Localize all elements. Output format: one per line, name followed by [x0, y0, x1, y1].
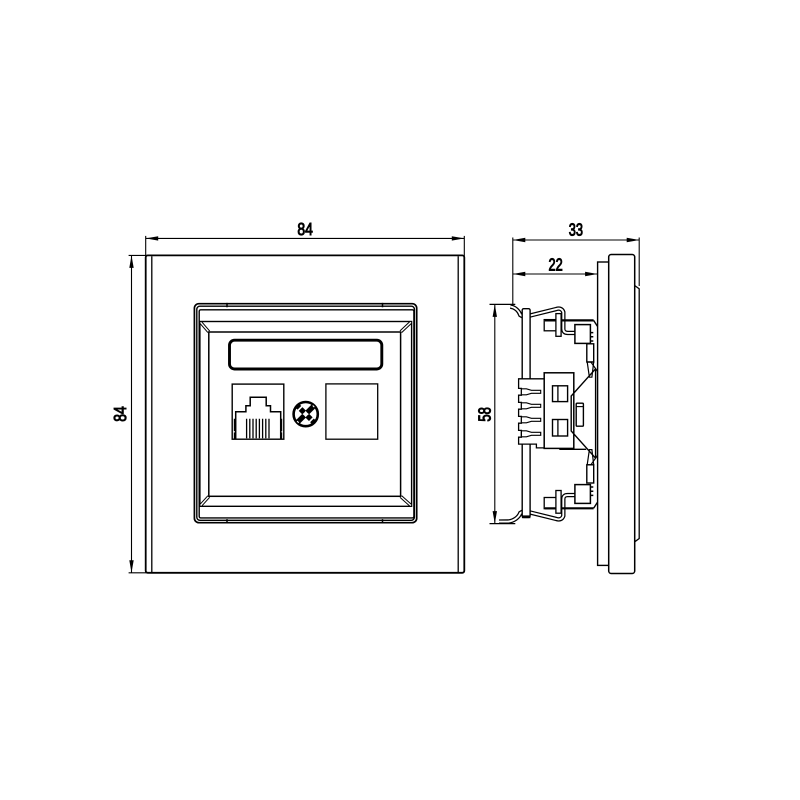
svg-text:58: 58 — [474, 407, 494, 422]
svg-text:84: 84 — [110, 406, 130, 422]
svg-text:84: 84 — [297, 219, 313, 239]
svg-text:22: 22 — [549, 254, 563, 274]
svg-text:33: 33 — [569, 220, 583, 240]
